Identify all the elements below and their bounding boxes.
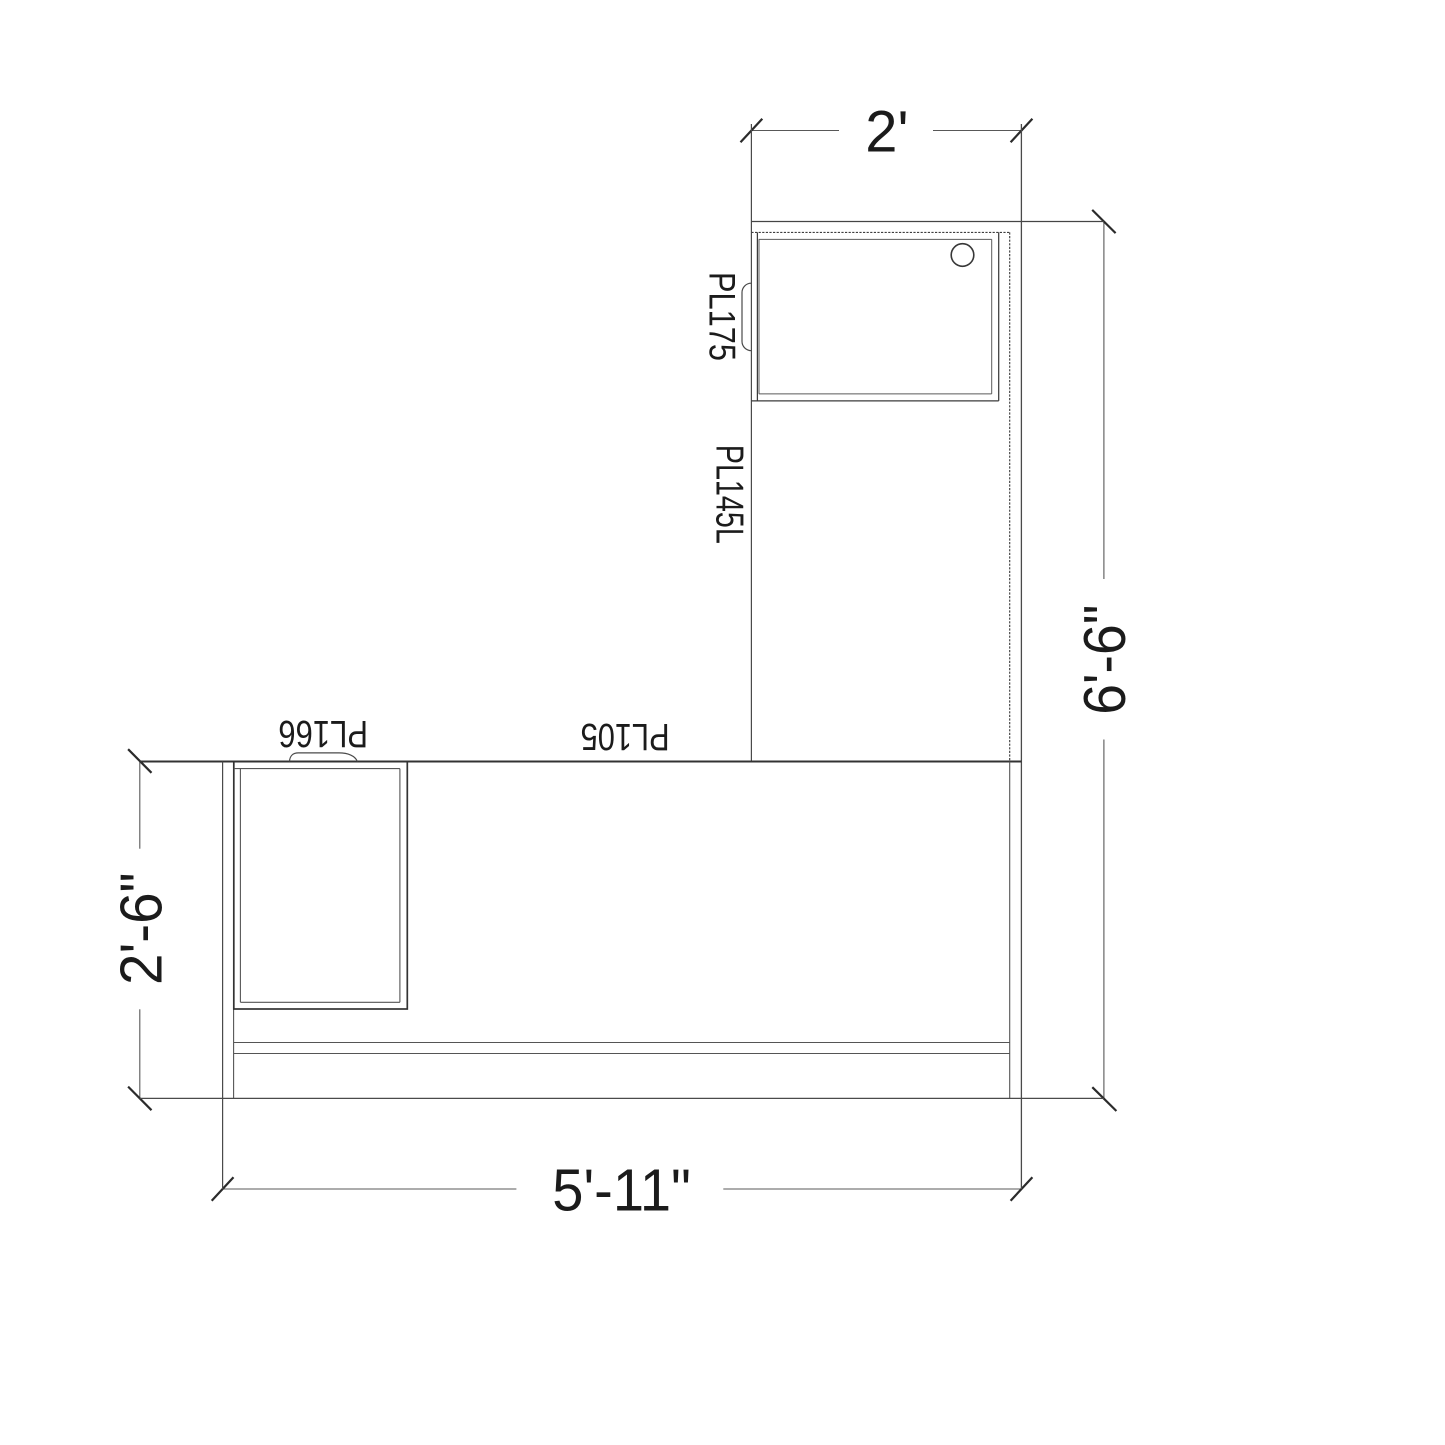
svg-text:PL166: PL166 (278, 712, 368, 754)
svg-text:5'-11": 5'-11" (552, 1158, 691, 1224)
svg-text:PL145L: PL145L (708, 445, 751, 544)
svg-text:6'-6": 6'-6" (1072, 605, 1138, 715)
svg-text:PL175: PL175 (701, 272, 743, 361)
svg-text:2': 2' (865, 99, 908, 164)
svg-text:2'-6": 2'-6" (108, 872, 175, 985)
svg-text:PL105: PL105 (581, 715, 670, 757)
